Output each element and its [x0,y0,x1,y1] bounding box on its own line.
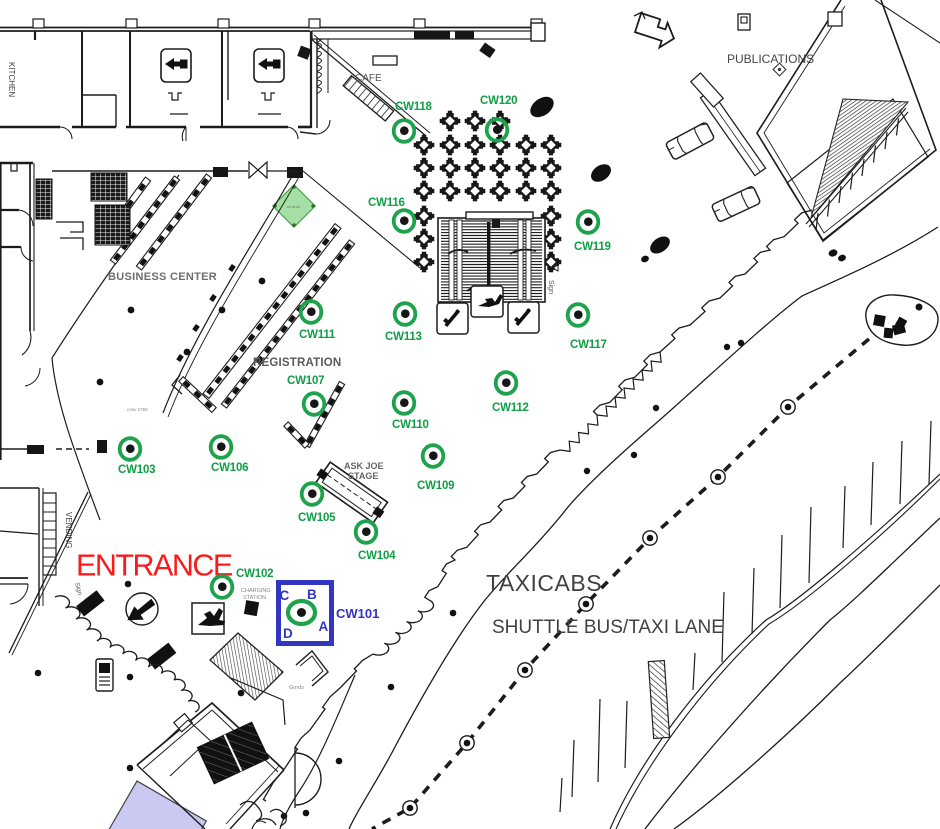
svg-text:CW110: CW110 [392,419,429,431]
svg-text:CHARGING: CHARGING [241,588,271,594]
svg-text:SHUTTLE BUS/TAXI LANE: SHUTTLE BUS/TAXI LANE [492,617,724,638]
svg-text:CW101: CW101 [336,606,379,621]
svg-text:Sign: Sign [547,280,554,294]
svg-text:CW111: CW111 [299,329,336,341]
svg-text:CW120: CW120 [480,95,517,107]
svg-text:conv 2750: conv 2750 [127,407,148,412]
svg-text:B: B [307,587,317,602]
svg-text:CW117: CW117 [570,339,607,351]
svg-text:CAFE: CAFE [355,73,382,84]
svg-text:CW104: CW104 [358,550,396,562]
svg-text:CW107: CW107 [287,375,324,387]
svg-text:sit area: sit area [287,204,301,209]
svg-text:CW113: CW113 [385,331,422,343]
svg-text:BUSINESS CENTER: BUSINESS CENTER [108,271,217,283]
svg-text:CW106: CW106 [211,462,248,474]
svg-text:CW109: CW109 [417,480,454,492]
svg-text:CW103: CW103 [118,464,155,476]
svg-text:VENDING: VENDING [64,512,73,548]
svg-text:A: A [319,619,329,634]
svg-text:CW119: CW119 [574,241,611,253]
svg-text:CW102: CW102 [236,568,273,580]
svg-text:REGISTRATION: REGISTRATION [253,357,341,369]
svg-text:KITCHEN: KITCHEN [7,62,16,97]
svg-text:Grnds: Grnds [289,685,304,691]
svg-text:CW112: CW112 [492,402,529,414]
svg-text:CW118: CW118 [395,101,433,113]
svg-text:D: D [283,626,293,641]
svg-text:CW105: CW105 [298,512,336,524]
svg-text:ENTRANCE: ENTRANCE [76,549,233,583]
svg-text:CW116: CW116 [368,197,405,209]
svg-text:TAXICABS: TAXICABS [486,570,602,596]
svg-text:C: C [280,588,290,603]
svg-text:STAGE: STAGE [348,471,378,481]
svg-text:ASK JOE: ASK JOE [344,461,384,471]
